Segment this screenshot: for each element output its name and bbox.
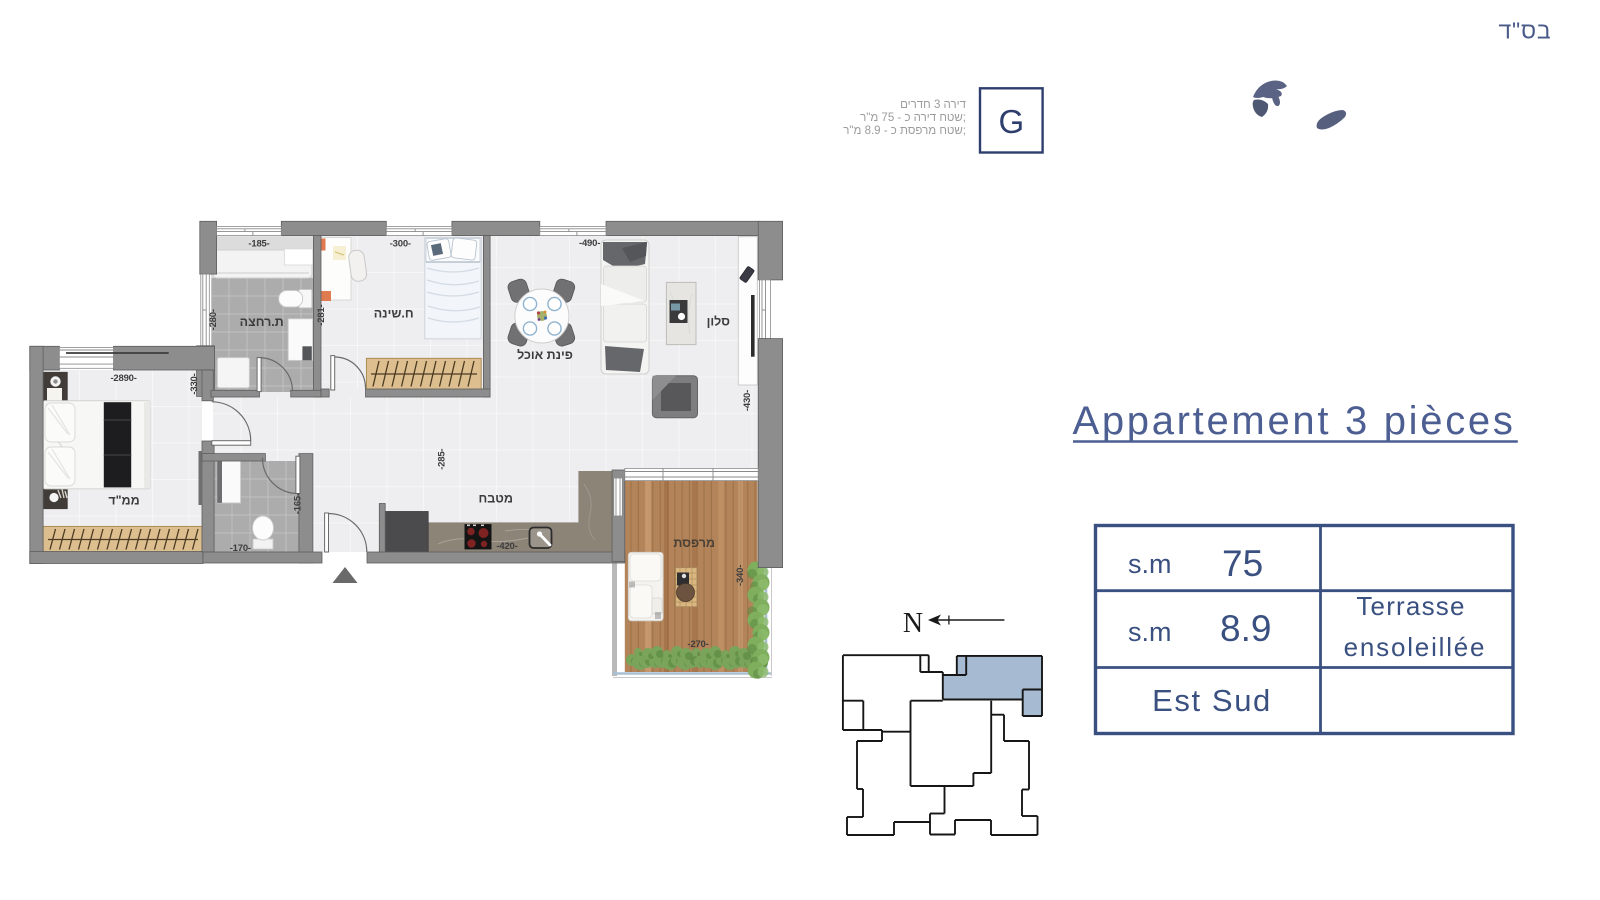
svg-text:בס"ד: בס"ד bbox=[1499, 18, 1552, 44]
svg-text:מטבח: מטבח bbox=[478, 492, 512, 506]
svg-text:-330-: -330- bbox=[189, 373, 200, 394]
svg-text:מרפסת: מרפסת bbox=[673, 536, 715, 550]
svg-text:דירה 3 חדרים: דירה 3 חדרים bbox=[900, 99, 967, 111]
svg-text:-490-: -490- bbox=[579, 238, 600, 249]
svg-text:ensoleillée: ensoleillée bbox=[1344, 632, 1487, 662]
svg-text:-285-: -285- bbox=[436, 449, 447, 470]
svg-text:סלון: סלון bbox=[707, 315, 731, 329]
svg-text:Est Sud: Est Sud bbox=[1152, 683, 1272, 718]
svg-text:-420-: -420- bbox=[496, 541, 517, 552]
svg-text:N: N bbox=[903, 608, 923, 639]
svg-text:Appartement 3 pièces: Appartement 3 pièces bbox=[1072, 399, 1515, 443]
svg-text:שטח דירה כ - 75 מ"ר;: שטח דירה כ - 75 מ"ר; bbox=[860, 112, 966, 124]
svg-text:-430-: -430- bbox=[742, 390, 753, 411]
svg-text:-340-: -340- bbox=[735, 565, 746, 586]
svg-text:ממ"ד: ממ"ד bbox=[108, 493, 139, 507]
svg-text:s.m: s.m bbox=[1128, 617, 1172, 647]
svg-text:ת.רחצה: ת.רחצה bbox=[240, 315, 284, 329]
svg-text:-281-: -281- bbox=[316, 304, 327, 325]
svg-text:ח.שינה: ח.שינה bbox=[374, 307, 414, 321]
svg-text:Terrasse: Terrasse bbox=[1356, 591, 1465, 621]
svg-text:שטח מרפסת כ - 8.9 מ"ר;: שטח מרפסת כ - 8.9 מ"ר; bbox=[843, 125, 966, 137]
svg-text:G: G bbox=[998, 103, 1024, 140]
svg-text:-2890-: -2890- bbox=[110, 373, 136, 384]
svg-text:-170-: -170- bbox=[230, 543, 251, 554]
svg-text:8.9: 8.9 bbox=[1220, 608, 1271, 649]
svg-text:-165-: -165- bbox=[293, 493, 304, 514]
svg-text:-280-: -280- bbox=[208, 309, 219, 330]
svg-text:-185-: -185- bbox=[248, 238, 269, 249]
svg-text:פינת אוכל: פינת אוכל bbox=[517, 348, 573, 362]
svg-text:-270-: -270- bbox=[687, 639, 708, 650]
svg-text:-300-: -300- bbox=[390, 239, 411, 250]
svg-text:s.m: s.m bbox=[1128, 549, 1172, 579]
svg-text:75: 75 bbox=[1222, 543, 1263, 584]
